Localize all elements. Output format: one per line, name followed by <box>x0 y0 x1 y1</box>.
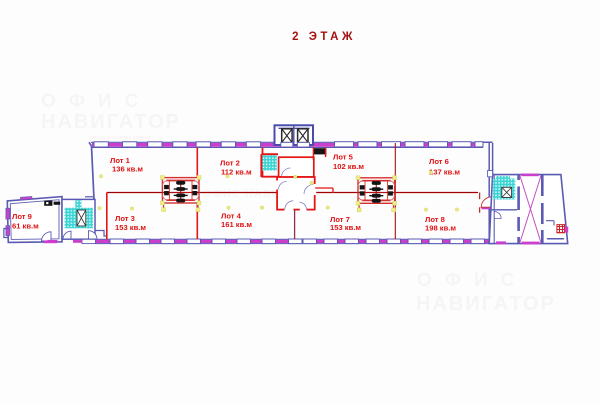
svg-text:112 кв.м: 112 кв.м <box>221 167 252 176</box>
svg-text:102 кв.м: 102 кв.м <box>333 162 364 171</box>
svg-text:Лот 2: Лот 2 <box>220 159 240 168</box>
svg-text:Лот 3: Лот 3 <box>115 214 135 223</box>
svg-text:ОФИС: ОФИС <box>41 91 151 112</box>
svg-text:аренда и продажа офисов: аренда и продажа офисов <box>89 135 151 141</box>
svg-text:ОФИС: ОФИС <box>417 270 527 291</box>
svg-text:2 ЭТАЖ: 2 ЭТАЖ <box>292 31 356 43</box>
svg-text:Лот 5: Лот 5 <box>333 153 354 162</box>
svg-text:198 кв.м: 198 кв.м <box>425 223 456 232</box>
svg-text:НАВИГАТОР: НАВИГАТОР <box>416 293 556 315</box>
svg-text:61 кв.м: 61 кв.м <box>12 221 39 230</box>
svg-text:136 кв.м: 136 кв.м <box>112 165 143 174</box>
svg-text:НАВИГАТОР: НАВИГАТОР <box>41 111 181 133</box>
svg-text:137 кв.м: 137 кв.м <box>429 168 460 177</box>
svg-text:Лот 9: Лот 9 <box>12 212 32 221</box>
svg-text:Лот 6: Лот 6 <box>429 157 449 166</box>
svg-text:153 кв.м: 153 кв.м <box>330 223 361 232</box>
svg-text:153 кв.м: 153 кв.м <box>115 223 146 232</box>
svg-text:161 кв.м: 161 кв.м <box>221 220 252 229</box>
